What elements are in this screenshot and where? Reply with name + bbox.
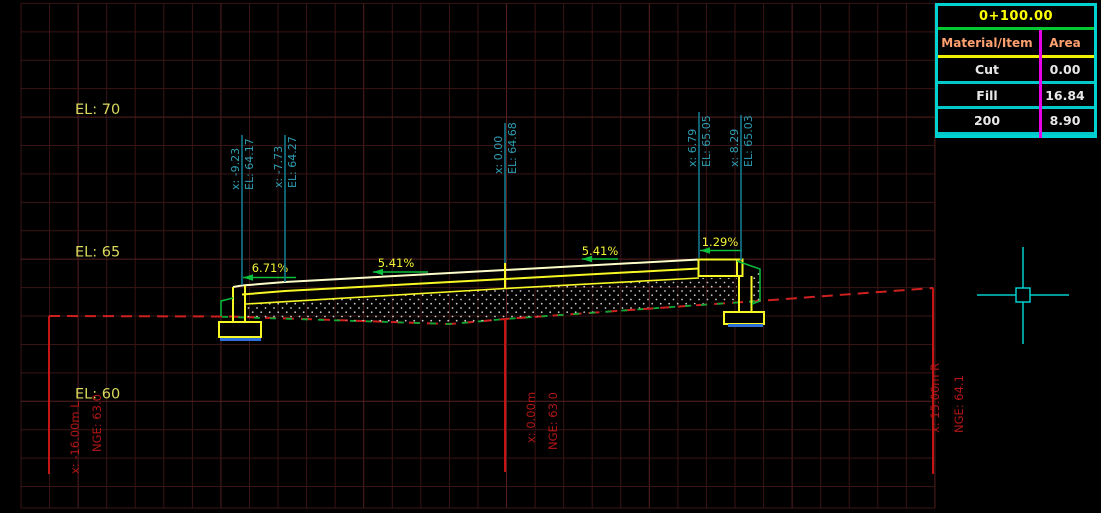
cell-material: 200 bbox=[938, 113, 1036, 128]
grid bbox=[21, 3, 935, 508]
svg-text:EL: 65.05: EL: 65.05 bbox=[700, 115, 713, 167]
header-material: Material/Item bbox=[938, 36, 1036, 50]
slope-label: 5.41% bbox=[378, 256, 415, 270]
svg-text:x: 0.00: x: 0.00 bbox=[492, 136, 505, 174]
quantity-table: 0+100.00 Material/Item Area Cut 0.00 Fil… bbox=[935, 3, 1097, 138]
offset-marker: x: 0.00 EL: 64.68 bbox=[492, 122, 519, 263]
svg-text:EL: 65.03: EL: 65.03 bbox=[742, 115, 755, 167]
station-marker: x: 15.00m R NGE: 64.1 bbox=[928, 288, 966, 474]
elevation-labels: EL: 70 EL: 65 EL: 60 bbox=[75, 102, 120, 403]
svg-text:x: 15.00m R: x: 15.00m R bbox=[928, 363, 942, 433]
left-footing bbox=[219, 322, 261, 337]
cad-viewport: 6.71% 5.41% 5.41% 1.29% x: -9.23 EL: 64.… bbox=[0, 0, 1101, 513]
cell-area: 8.90 bbox=[1036, 113, 1094, 128]
svg-text:x: -9.23: x: -9.23 bbox=[229, 148, 242, 190]
slope-label: 1.29% bbox=[702, 235, 739, 249]
svg-text:EL: 64.17: EL: 64.17 bbox=[243, 138, 256, 190]
svg-text:NGE: 64.1: NGE: 64.1 bbox=[952, 375, 966, 433]
elevation-label: EL: 65 bbox=[75, 245, 120, 261]
pickbox bbox=[1016, 288, 1030, 302]
svg-text:NGE: 63.0: NGE: 63.0 bbox=[90, 394, 104, 452]
slope-label: 5.41% bbox=[582, 244, 619, 258]
svg-text:x: 6.79: x: 6.79 bbox=[686, 129, 699, 167]
cell-area: 0.00 bbox=[1036, 62, 1094, 77]
table-row: 200 8.90 bbox=[938, 109, 1094, 135]
right-wall-stem bbox=[739, 276, 752, 312]
cell-material: Cut bbox=[938, 62, 1036, 77]
svg-text:x: 0.00m: x: 0.00m bbox=[524, 392, 538, 443]
right-footing bbox=[724, 312, 764, 324]
svg-text:x: -16.00m L: x: -16.00m L bbox=[68, 401, 82, 474]
crosshair-cursor[interactable] bbox=[977, 247, 1069, 344]
table-row: Fill 16.84 bbox=[938, 84, 1094, 110]
slope-annotations: 6.71% 5.41% 5.41% 1.29% bbox=[243, 235, 742, 281]
station-title: 0+100.00 bbox=[938, 6, 1094, 30]
svg-text:EL: 64.27: EL: 64.27 bbox=[286, 136, 299, 188]
cell-material: Fill bbox=[938, 88, 1036, 103]
svg-text:NGE: 63.0: NGE: 63.0 bbox=[546, 392, 560, 450]
svg-text:x: -7.73: x: -7.73 bbox=[272, 146, 285, 188]
left-daylight-line bbox=[221, 298, 233, 316]
slope-arrow: 1.29% bbox=[700, 235, 742, 254]
cell-area: 16.84 bbox=[1036, 88, 1094, 103]
table-column-divider bbox=[1039, 30, 1042, 138]
right-curb bbox=[699, 260, 743, 277]
svg-text:x: 8.29: x: 8.29 bbox=[728, 129, 741, 167]
slope-label: 6.71% bbox=[252, 261, 289, 275]
slope-arrow: 6.71% bbox=[243, 261, 296, 281]
elevation-label: EL: 60 bbox=[75, 387, 120, 403]
offset-marker: x: -7.73 EL: 64.27 bbox=[272, 135, 299, 282]
table-header-row: Material/Item Area bbox=[938, 30, 1094, 58]
elevation-label: EL: 70 bbox=[75, 102, 120, 118]
table-row: Cut 0.00 bbox=[938, 58, 1094, 84]
station-marker: x: 0.00m NGE: 63.0 bbox=[505, 319, 560, 472]
svg-text:EL: 64.68: EL: 64.68 bbox=[506, 122, 519, 174]
slope-arrow: 5.41% bbox=[582, 244, 619, 262]
header-area: Area bbox=[1036, 36, 1094, 50]
